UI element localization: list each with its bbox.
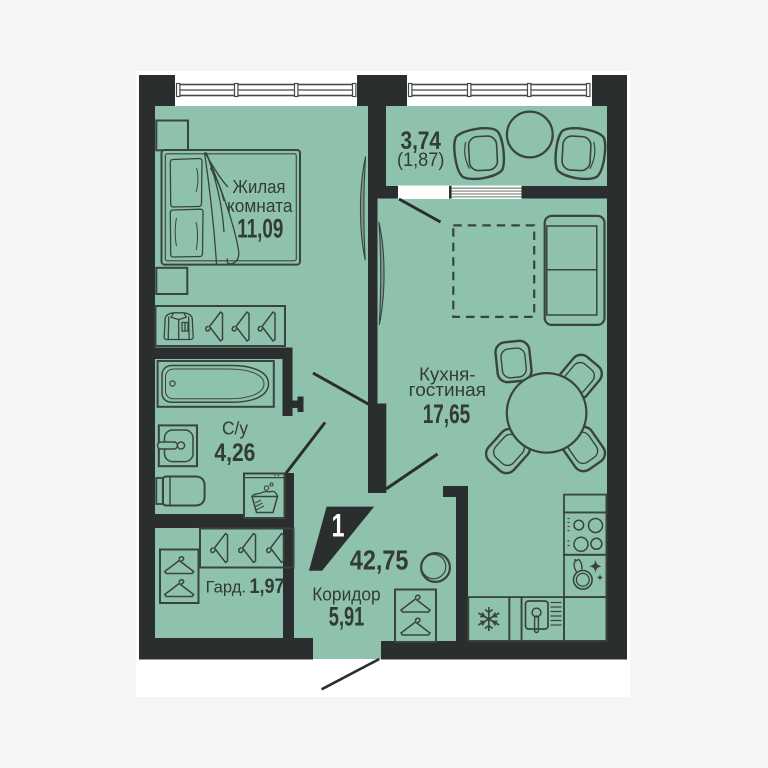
svg-text:11,09: 11,09 bbox=[237, 213, 283, 243]
svg-text:5,91: 5,91 bbox=[329, 602, 365, 632]
svg-text:Гард.: Гард. bbox=[206, 579, 247, 597]
svg-text:Жилая: Жилая bbox=[233, 177, 286, 197]
svg-text:17,65: 17,65 bbox=[423, 399, 471, 429]
svg-text:(1,87): (1,87) bbox=[397, 150, 444, 171]
svg-text:4,26: 4,26 bbox=[214, 439, 255, 467]
svg-text:1,97: 1,97 bbox=[250, 575, 285, 598]
svg-text:С/у: С/у bbox=[222, 419, 248, 439]
svg-text:42,75: 42,75 bbox=[350, 545, 409, 576]
svg-text:гостиная: гостиная bbox=[409, 380, 486, 400]
svg-text:1: 1 bbox=[332, 508, 345, 544]
